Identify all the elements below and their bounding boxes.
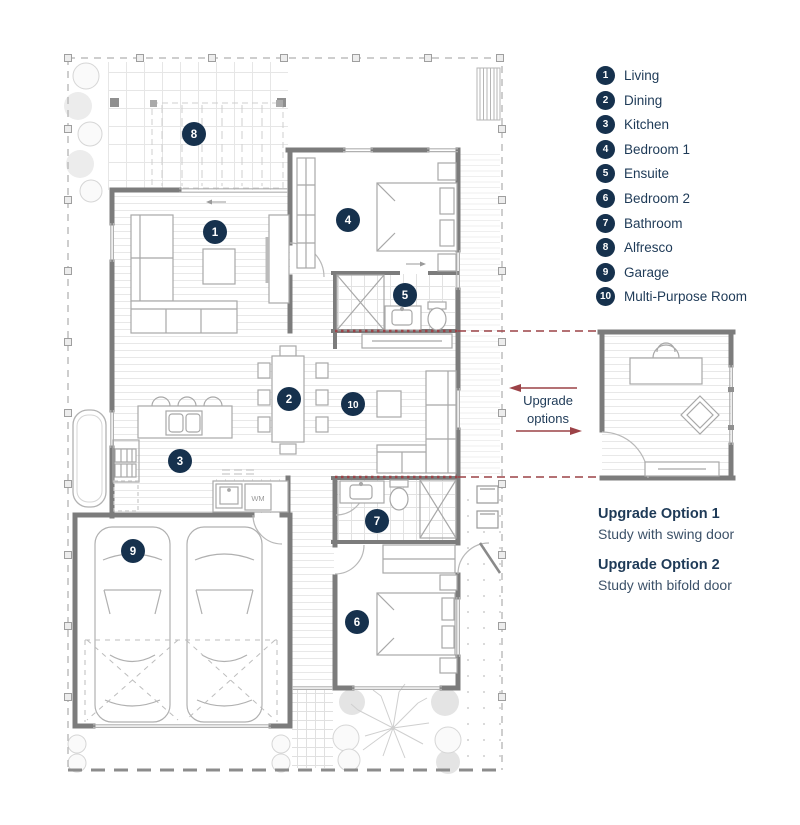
svg-text:3: 3 (177, 456, 183, 468)
room-marker-6: 6 (345, 610, 369, 634)
legend-label: Ensuite (624, 166, 669, 181)
room-marker-9: 9 (121, 539, 145, 563)
left-arrow-icon (509, 384, 521, 392)
upgrade-option-list: Upgrade Option 1 Study with swing door U… (598, 505, 734, 595)
svg-text:10: 10 (347, 400, 359, 411)
upgrade-label-line1: Upgrade (506, 392, 590, 410)
bedroom1-furniture (297, 158, 457, 271)
svg-text:5: 5 (402, 290, 409, 302)
room-marker-4: 4 (336, 208, 360, 232)
legend-label: Alfresco (624, 240, 673, 255)
legend-label: Living (624, 68, 659, 83)
upgrade-option-1: Upgrade Option 1 Study with swing door (598, 505, 734, 543)
legend-label: Garage (624, 265, 669, 280)
legend-item: 6Bedroom 2 (596, 189, 747, 208)
legend-number-badge: 10 (596, 287, 615, 306)
legend-item: 4Bedroom 1 (596, 140, 747, 159)
svg-text:9: 9 (130, 546, 136, 558)
room-marker-2: 2 (277, 387, 301, 411)
legend: 1Living2Dining3Kitchen4Bedroom 15Ensuite… (596, 66, 747, 312)
legend-item: 2Dining (596, 91, 747, 110)
legend-item: 7Bathroom (596, 214, 747, 233)
legend-number-badge: 8 (596, 238, 615, 257)
legend-number-badge: 6 (596, 189, 615, 208)
upgrade-options-label: Upgrade options (506, 392, 590, 428)
legend-label: Multi-Purpose Room (624, 289, 747, 304)
legend-label: Bedroom 2 (624, 191, 690, 206)
legend-number-badge: 5 (596, 164, 615, 183)
room-marker-8: 8 (182, 122, 206, 146)
legend-item: 1Living (596, 66, 747, 85)
svg-text:8: 8 (191, 129, 198, 141)
legend-label: Bathroom (624, 216, 683, 231)
upgrade-option-1-desc: Study with swing door (598, 525, 734, 544)
legend-item: 5Ensuite (596, 164, 747, 183)
legend-number-badge: 1 (596, 66, 615, 85)
room-marker-3: 3 (168, 449, 192, 473)
legend-label: Dining (624, 93, 662, 108)
legend-label: Kitchen (624, 117, 669, 132)
room-marker-7: 7 (365, 509, 389, 533)
upgrade-option-2: Upgrade Option 2 Study with bifold door (598, 556, 734, 594)
garage-cars (85, 527, 277, 722)
legend-number-badge: 2 (596, 91, 615, 110)
upgrade-option-1-title: Upgrade Option 1 (598, 505, 734, 525)
legend-item: 10Multi-Purpose Room (596, 287, 747, 306)
legend-label: Bedroom 1 (624, 142, 690, 157)
legend-item: 3Kitchen (596, 115, 747, 134)
legend-item: 9Garage (596, 263, 747, 282)
room-marker-10: 10 (341, 392, 365, 416)
legend-number-badge: 4 (596, 140, 615, 159)
legend-number-badge: 3 (596, 115, 615, 134)
svg-text:2: 2 (286, 394, 292, 406)
legend-number-badge: 9 (596, 263, 615, 282)
water-tank (73, 410, 106, 507)
bedroom2-furniture (377, 545, 457, 673)
upgrade-option-2-title: Upgrade Option 2 (598, 556, 734, 576)
upgrade-label-line2: options (506, 410, 590, 428)
svg-text:1: 1 (212, 227, 219, 239)
side-steps (477, 68, 500, 120)
upgrade-option-2-desc: Study with bifold door (598, 576, 734, 595)
svg-text:7: 7 (374, 516, 380, 528)
svg-text:6: 6 (354, 617, 360, 629)
legend-item: 8Alfresco (596, 238, 747, 257)
wm-label: WM (251, 494, 264, 503)
room-marker-1: 1 (203, 220, 227, 244)
legend-number-badge: 7 (596, 214, 615, 233)
room-marker-5: 5 (393, 283, 417, 307)
floorplan-page: WM (0, 0, 800, 825)
svg-text:4: 4 (345, 215, 352, 227)
